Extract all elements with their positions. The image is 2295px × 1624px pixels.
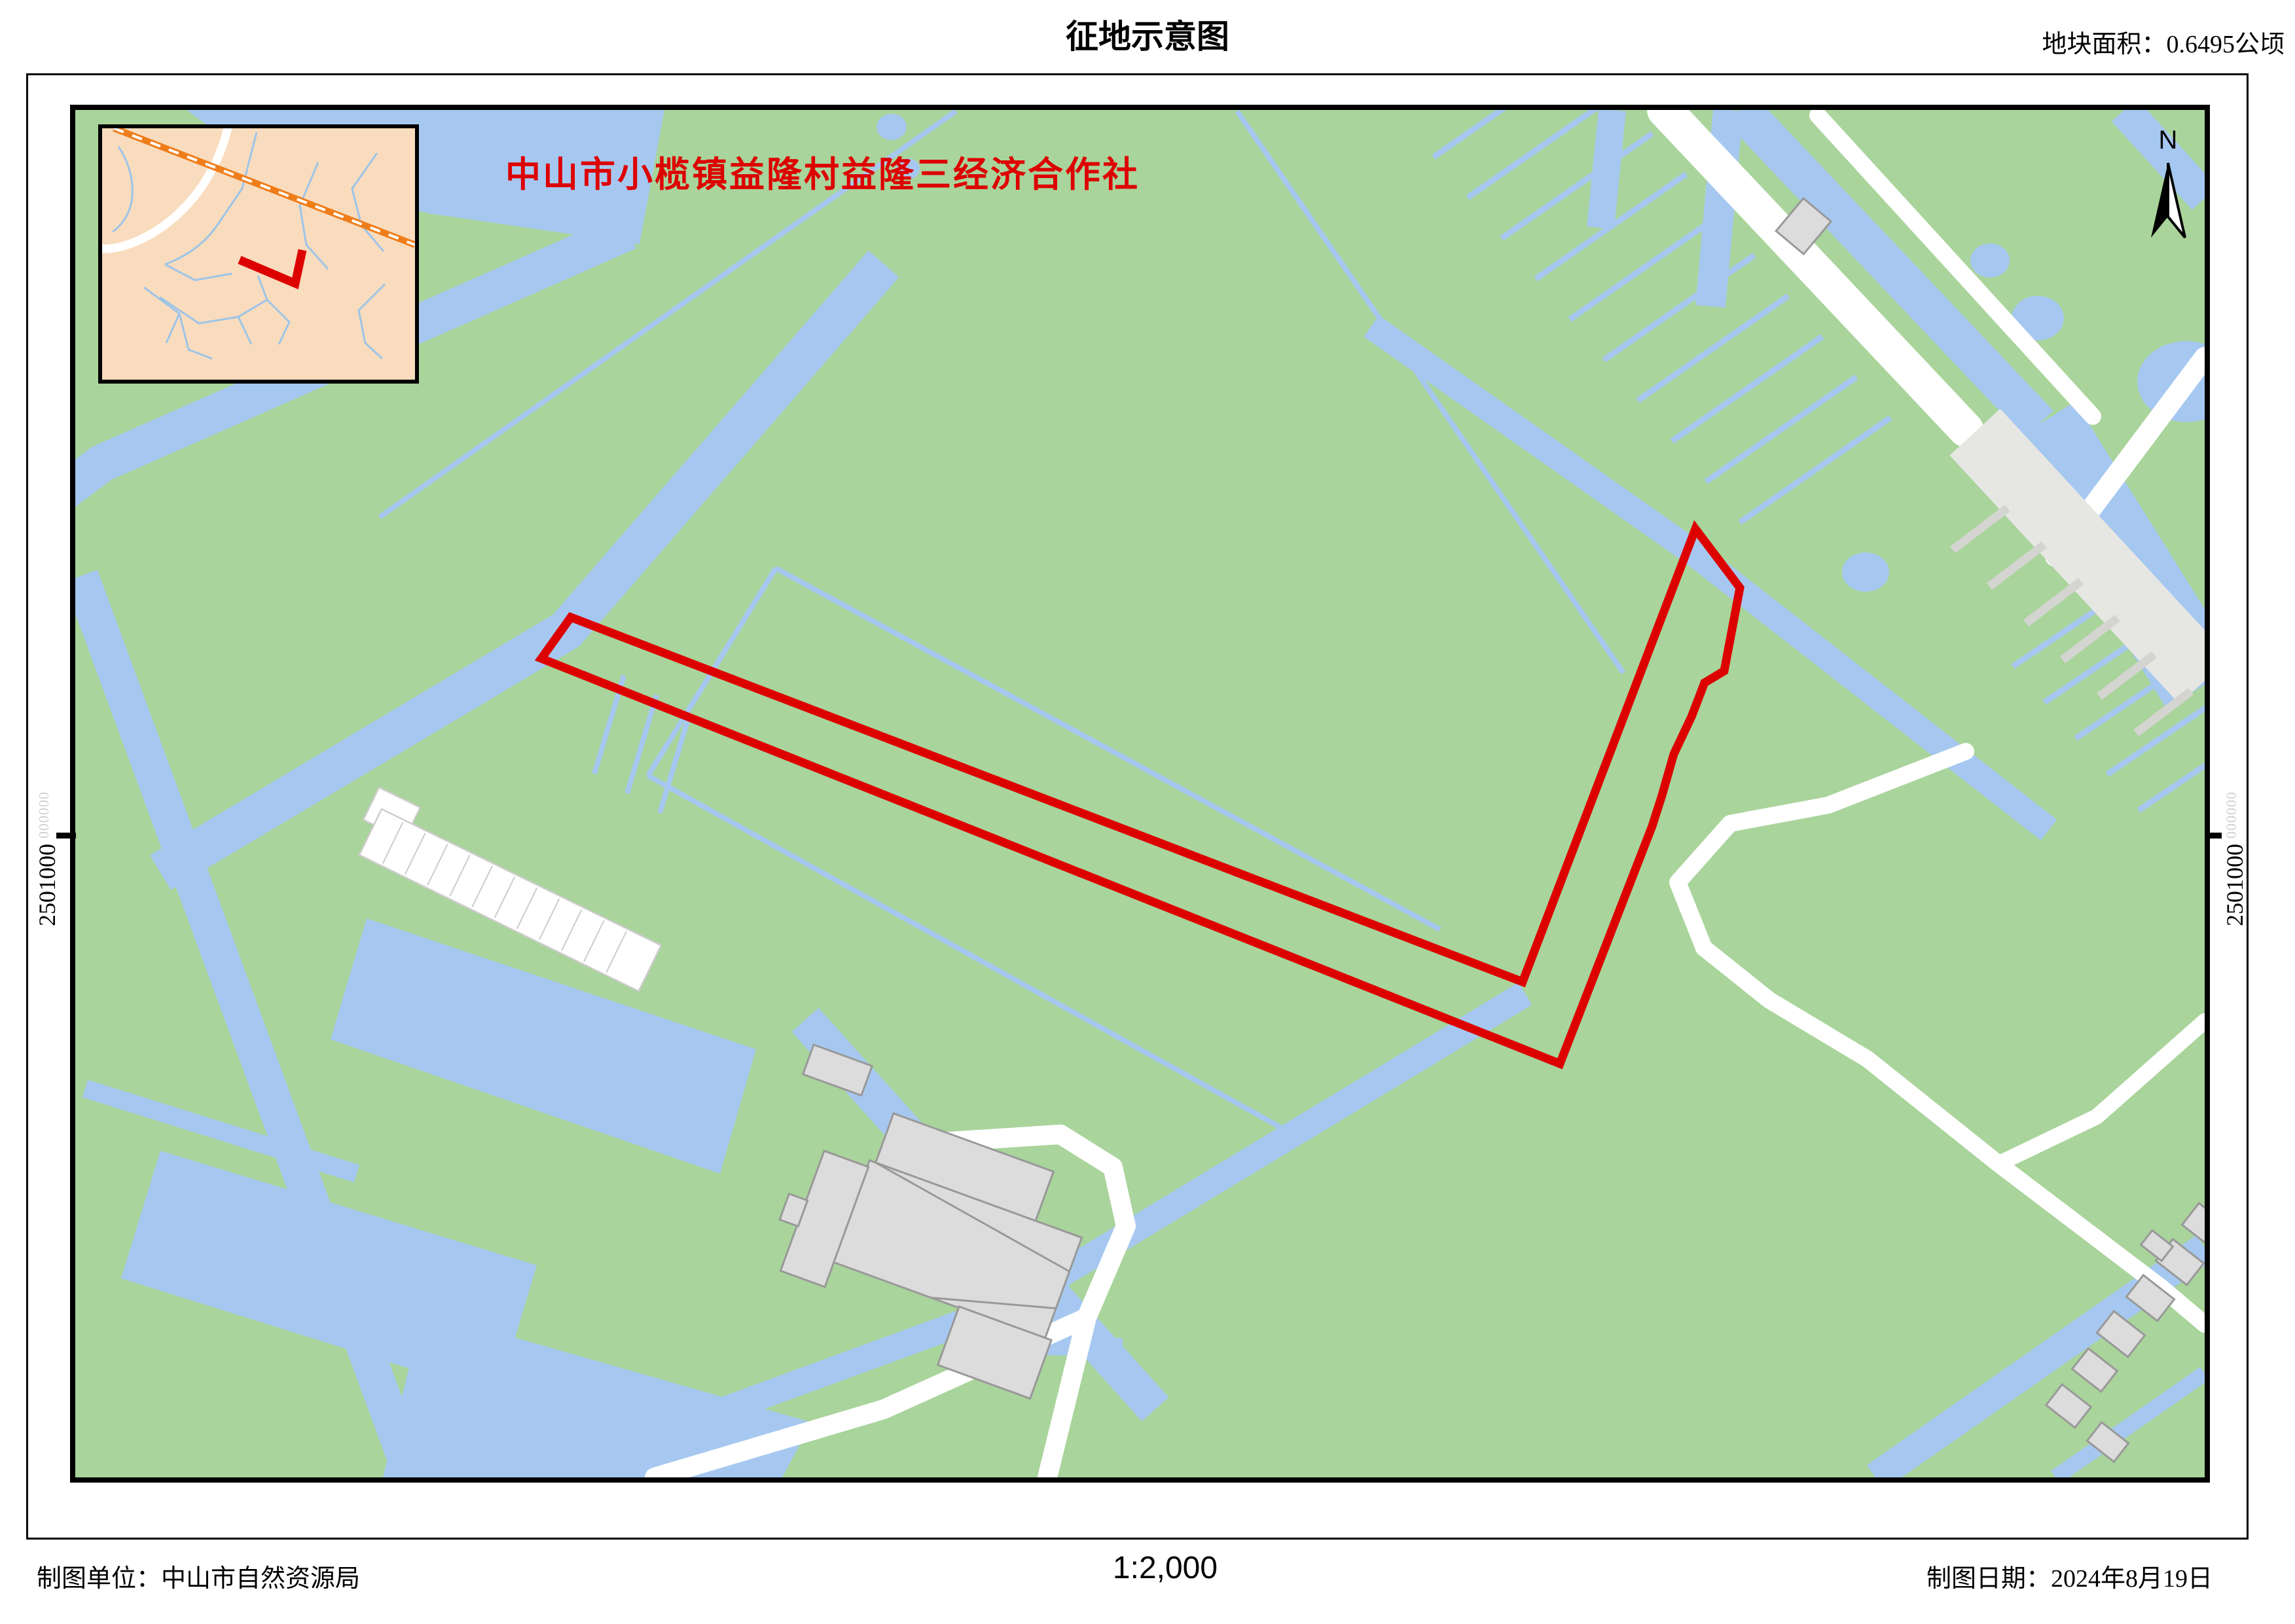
pond <box>331 918 756 1174</box>
road <box>1818 115 2093 416</box>
road-junction <box>1678 751 2205 1324</box>
grid-coordinate-right-value: 2501000 <box>2222 844 2248 926</box>
page-title: 征地示意图 <box>0 10 2295 58</box>
pond-blob <box>876 114 907 140</box>
owner-label: 中山市小榄镇益隆村益隆三经济合作社 <box>505 145 1140 197</box>
grid-tick-right <box>2205 833 2222 839</box>
pond-blob <box>1970 244 2010 278</box>
grid-coordinate-left-suffix: 000000 <box>35 791 52 839</box>
grid-coordinate-left: 2501000000000 <box>33 791 61 926</box>
date-label: 制图日期：2024年8月19日 <box>1926 1558 2213 1594</box>
north-label: N <box>2142 126 2194 155</box>
grid-coordinate-left-value: 2501000 <box>34 844 60 926</box>
inset-canvas <box>102 128 415 380</box>
producer-label: 制图单位：中山市自然资源局 <box>37 1558 360 1594</box>
parcel-outline <box>541 529 1740 1064</box>
canal <box>85 1089 357 1174</box>
inset-locator-map <box>98 124 419 384</box>
scale-label: 1:2,000 <box>1113 1550 1218 1586</box>
road <box>1998 1021 2205 1164</box>
inset-parcel-marker <box>240 250 302 283</box>
inset-streams <box>113 132 385 359</box>
pond-blob <box>1842 552 1889 592</box>
grid-coordinate-right-suffix: 000000 <box>2223 791 2239 839</box>
plot-area-label: 地块面积：0.6495公顷 <box>2042 24 2285 60</box>
grid-coordinate-right: 2501000000000 <box>2221 791 2249 926</box>
north-arrow-icon <box>2148 155 2188 247</box>
north-arrow: N <box>2142 126 2194 250</box>
